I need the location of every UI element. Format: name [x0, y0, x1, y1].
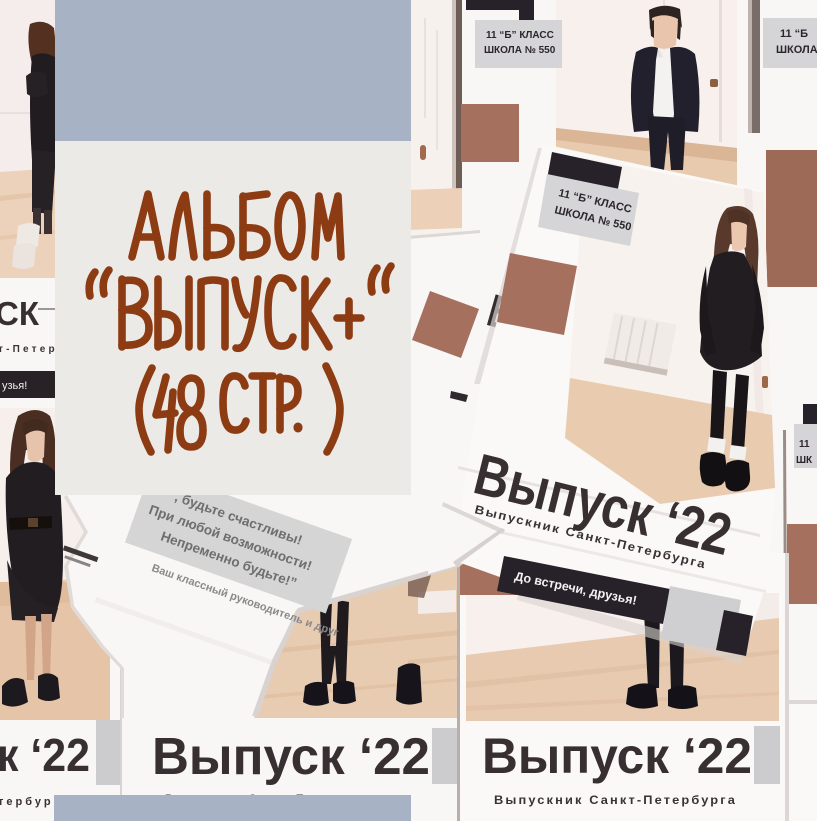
- svg-text:СК: СК: [0, 295, 40, 332]
- svg-text:узья!: узья!: [2, 380, 27, 392]
- svg-text:Выпуск ‘22: Выпуск ‘22: [152, 728, 430, 786]
- svg-text:11 “Б” КЛАСС: 11 “Б” КЛАСС: [486, 30, 554, 41]
- svg-text:ШК: ШК: [796, 455, 813, 466]
- svg-text:тербур: тербур: [0, 796, 54, 808]
- svg-text:Выпускник Санкт-Петербурга: Выпускник Санкт-Петербурга: [494, 793, 737, 807]
- svg-text:к ‘22: к ‘22: [0, 729, 90, 781]
- svg-text:11 “Б: 11 “Б: [780, 28, 808, 40]
- svg-text:т-Петер: т-Петер: [0, 344, 58, 355]
- svg-text:11: 11: [799, 439, 810, 450]
- svg-text:ШКОЛА: ШКОЛА: [776, 44, 817, 56]
- svg-text:Выпуск ‘22: Выпуск ‘22: [482, 728, 752, 784]
- svg-text:ШКОЛА № 550: ШКОЛА № 550: [484, 45, 556, 56]
